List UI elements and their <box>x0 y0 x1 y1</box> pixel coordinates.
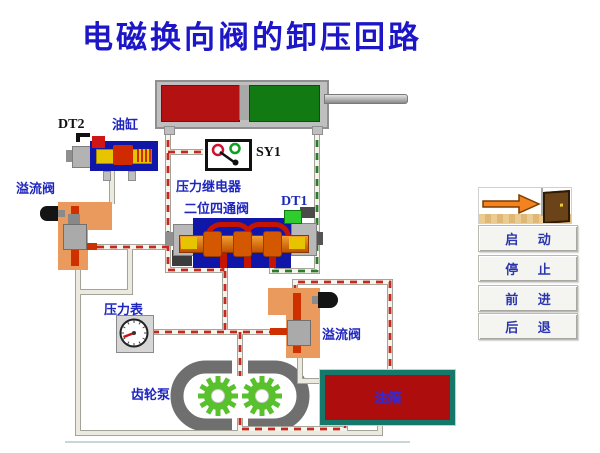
pressure-gauge-icon <box>116 315 154 353</box>
gear-pump-label: 齿轮泵 <box>131 384 170 403</box>
start-button[interactable]: 启 动 <box>478 225 578 252</box>
dt2-spring <box>137 149 151 162</box>
pipe-segment <box>300 356 322 381</box>
piston-rod <box>324 94 408 104</box>
relief-left-knob <box>40 206 58 221</box>
pressure-relay-label: 压力继电器 <box>176 176 241 195</box>
sy1-label: SY1 <box>256 145 281 161</box>
relief-valve-left-label: 溢流阀 <box>16 178 55 197</box>
relief-left-spool <box>63 224 87 250</box>
valve-spool-land-3 <box>263 231 282 257</box>
forward-button[interactable]: 前 进 <box>478 285 578 312</box>
valve-spool-land <box>203 231 222 257</box>
dt2-spool-center <box>113 145 133 165</box>
exit-button[interactable] <box>478 187 572 224</box>
pressure-relay-contact-icon <box>208 142 249 168</box>
dt2-leg-2 <box>128 171 136 181</box>
stop-button[interactable]: 停 止 <box>478 255 578 282</box>
pipe-segment <box>300 356 322 381</box>
door-handle <box>560 204 563 207</box>
valve-spool-end-right <box>289 237 305 249</box>
backward-button[interactable]: 后 退 <box>478 313 578 340</box>
cylinder-right-chamber <box>249 85 320 122</box>
relief-valve-right-label: 溢流阀 <box>322 324 361 343</box>
relief-left-poppet <box>68 214 80 224</box>
four-way-valve-label: 二位四通阀 <box>184 198 249 217</box>
cylinder-port-left <box>164 126 175 135</box>
exit-arrow-icon <box>481 192 543 216</box>
dt1-indicator <box>284 210 302 224</box>
dt2-label: DT2 <box>58 117 84 133</box>
cylinder-label: 油缸 <box>112 114 138 133</box>
relief-right-knob <box>318 292 338 308</box>
pressure-relay-box <box>205 139 252 171</box>
dt2-indicator <box>92 136 105 148</box>
exit-door-icon <box>543 190 570 224</box>
relief-right-spool <box>287 320 311 346</box>
dt2-leg <box>103 171 111 181</box>
simulation-window: 电磁换向阀的卸压回路 <box>0 0 600 453</box>
slide-border <box>65 441 410 443</box>
relief-left-stem <box>57 210 65 217</box>
cylinder-port-right <box>312 126 323 135</box>
valve-spool-end-left <box>181 237 197 249</box>
dt2-pin-2 <box>76 133 80 142</box>
oil-tank: 油箱 <box>320 370 455 425</box>
cylinder-left-chamber <box>161 85 240 122</box>
dt1-label: DT1 <box>281 194 307 210</box>
valve-spool-land-2 <box>233 231 252 257</box>
oil-tank-label: 油箱 <box>374 388 402 408</box>
pressure-gauge-label: 压力表 <box>104 299 143 318</box>
